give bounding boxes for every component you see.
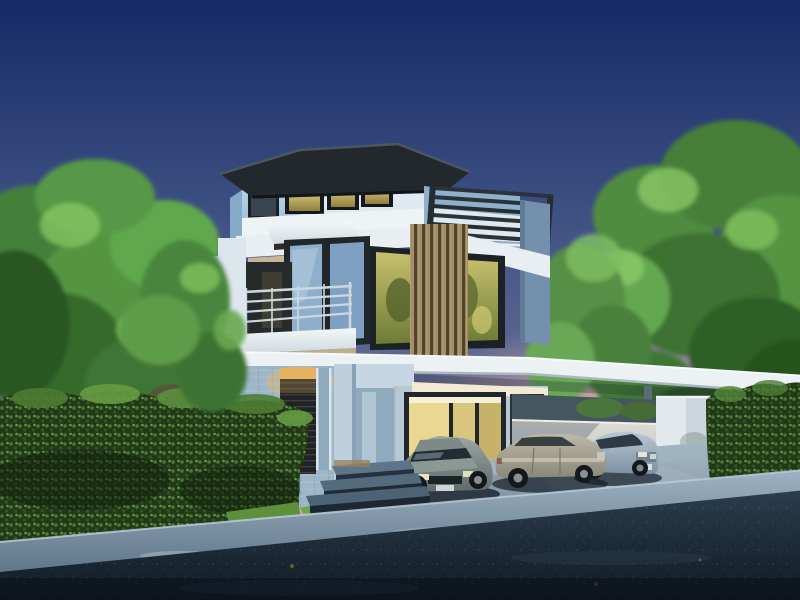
car-middle-taillight <box>497 458 502 464</box>
car-left-plate <box>436 485 454 491</box>
penthouse-window-pane-1 <box>251 196 276 216</box>
bottom-vignette <box>0 578 800 600</box>
fallen-leaf <box>290 564 294 568</box>
scene-svg <box>0 0 800 600</box>
car-middle-headlight <box>597 452 605 460</box>
car-left-grille <box>428 476 462 484</box>
rendering-canvas <box>0 0 800 600</box>
landing-warm <box>334 460 370 467</box>
car-right-headlight <box>638 452 647 457</box>
timber-louver-screen <box>410 224 468 358</box>
door-transom-light <box>280 368 316 379</box>
car-middle-streak <box>500 458 604 462</box>
door-sidelight <box>318 368 329 470</box>
